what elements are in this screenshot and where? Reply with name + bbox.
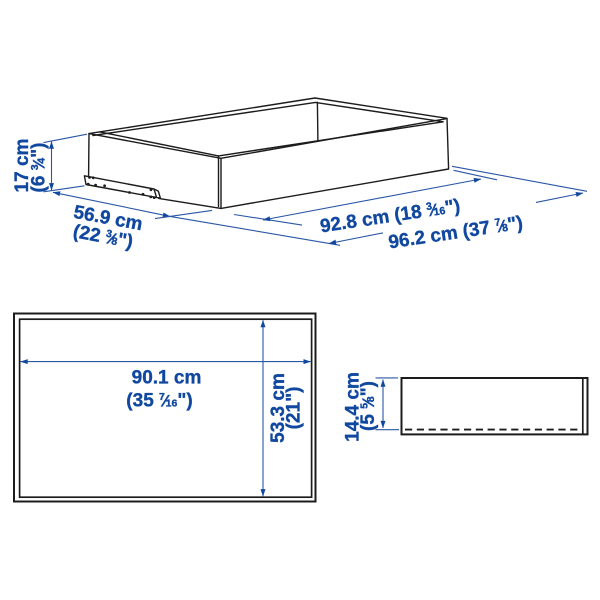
svg-text:(6 3⁄4"): (6 3⁄4"): [29, 143, 50, 193]
svg-text:(5 5⁄8"): (5 5⁄8"): [358, 381, 379, 431]
svg-text:(21"): (21"): [284, 387, 305, 430]
svg-text:(35 7⁄16"): (35 7⁄16"): [126, 391, 192, 412]
svg-text:90.1 cm: 90.1 cm: [132, 368, 202, 389]
